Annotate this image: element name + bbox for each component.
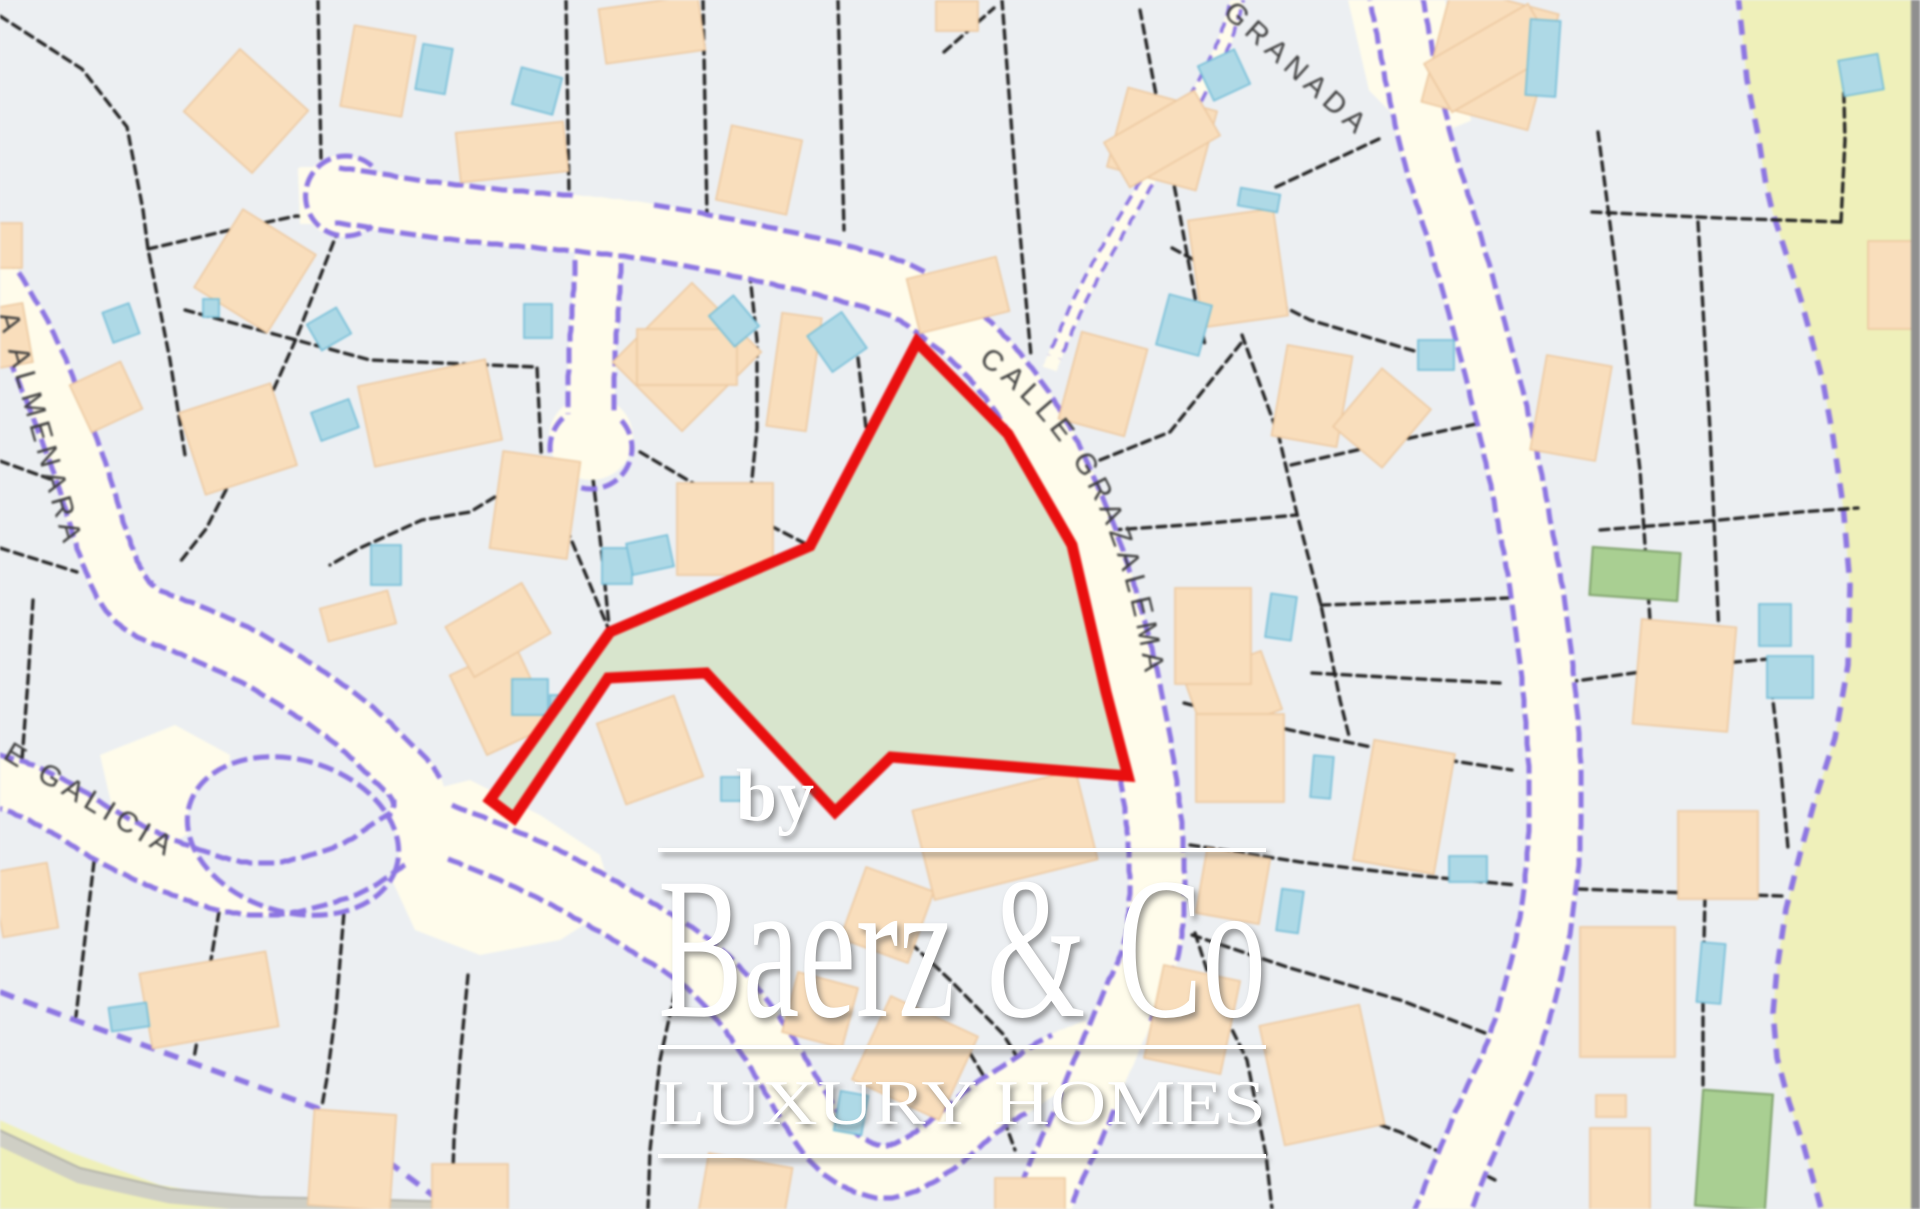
- svg-text:Baerz & Co: Baerz & Co: [658, 836, 1266, 1060]
- svg-text:LUXURY HOMES: LUXURY HOMES: [658, 1067, 1266, 1138]
- svg-text:by: by: [736, 755, 814, 837]
